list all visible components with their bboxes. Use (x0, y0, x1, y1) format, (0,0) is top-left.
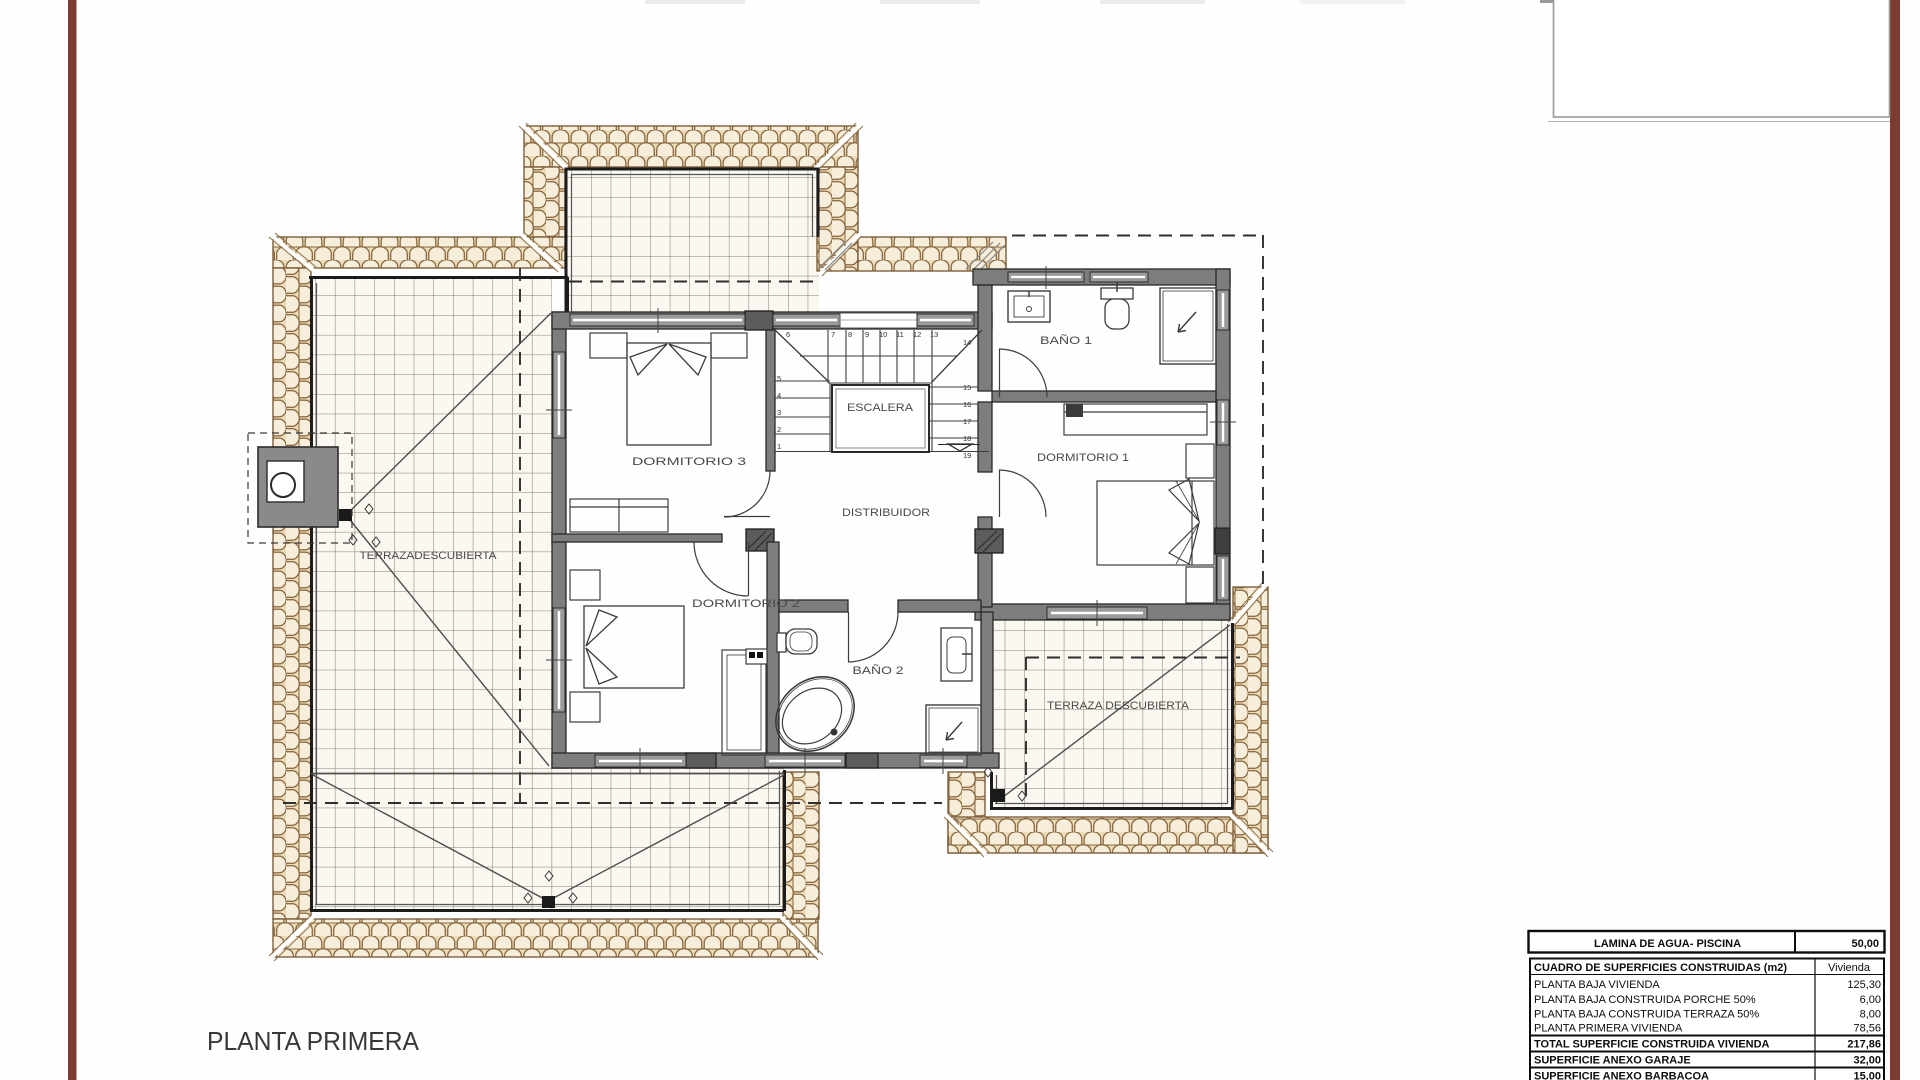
svg-text:14: 14 (963, 338, 971, 347)
svg-text:8: 8 (848, 330, 852, 339)
svg-text:Vivienda: Vivienda (1828, 962, 1871, 974)
svg-text:8,00: 8,00 (1860, 1009, 1881, 1021)
svg-text:1: 1 (777, 442, 781, 451)
svg-text:9: 9 (865, 330, 869, 339)
svg-text:16: 16 (963, 400, 971, 409)
svg-text:2: 2 (777, 425, 781, 434)
svg-text:LAMINA DE AGUA- PISCINA: LAMINA DE AGUA- PISCINA (1594, 938, 1741, 950)
svg-text:DISTRIBUIDOR: DISTRIBUIDOR (842, 507, 930, 519)
svg-text:SUPERFICIE ANEXO GARAJE: SUPERFICIE ANEXO GARAJE (1534, 1055, 1691, 1067)
svg-text:13: 13 (930, 330, 938, 339)
svg-text:PLANTA PRIMERA VIVIENDA: PLANTA PRIMERA VIVIENDA (1534, 1023, 1683, 1035)
svg-text:CUADRO DE SUPERFICIES CONSTRUI: CUADRO DE SUPERFICIES CONSTRUIDAS (m2) (1534, 962, 1787, 974)
svg-text:PLANTA BAJA CONSTRUIDA PORCHE: PLANTA BAJA CONSTRUIDA PORCHE 50% (1534, 994, 1756, 1006)
svg-text:17: 17 (963, 417, 971, 426)
svg-text:SUPERFICIE ANEXO BARBACOA: SUPERFICIE ANEXO BARBACOA (1534, 1071, 1709, 1080)
svg-text:78,56: 78,56 (1853, 1023, 1881, 1035)
svg-text:15,00: 15,00 (1853, 1071, 1881, 1080)
svg-text:19: 19 (963, 451, 971, 460)
svg-text:5: 5 (777, 374, 781, 383)
svg-text:DORMITORIO 3: DORMITORIO 3 (632, 456, 746, 468)
svg-text:PLANTA BAJA VIVIENDA: PLANTA BAJA VIVIENDA (1534, 979, 1660, 991)
svg-text:TOTAL SUPERFICIE CONSTRUIDA VI: TOTAL SUPERFICIE CONSTRUIDA VIVIENDA (1534, 1039, 1770, 1051)
svg-text:BAÑO 1: BAÑO 1 (1040, 334, 1092, 347)
svg-text:DORMITORIO 1: DORMITORIO 1 (1037, 452, 1129, 464)
svg-text:PLANTA BAJA CONSTRUIDA TERRAZA: PLANTA BAJA CONSTRUIDA TERRAZA 50% (1534, 1009, 1759, 1021)
svg-text:7: 7 (831, 330, 835, 339)
svg-text:125,30: 125,30 (1847, 979, 1881, 991)
svg-text:10: 10 (879, 330, 887, 339)
svg-text:3: 3 (777, 408, 781, 417)
svg-text:6,00: 6,00 (1860, 994, 1881, 1006)
svg-text:11: 11 (896, 330, 904, 339)
svg-text:50,00: 50,00 (1851, 938, 1879, 950)
svg-text:4: 4 (777, 391, 781, 400)
svg-text:ESCALERA: ESCALERA (847, 402, 914, 414)
svg-text:6: 6 (786, 330, 790, 339)
svg-text:BAÑO 2: BAÑO 2 (853, 664, 904, 677)
svg-text:32,00: 32,00 (1853, 1055, 1881, 1067)
svg-text:18: 18 (963, 434, 971, 443)
svg-text:TERRAZA DESCUBIERTA: TERRAZA DESCUBIERTA (1047, 700, 1190, 712)
svg-text:DORMITORIO 2: DORMITORIO 2 (692, 598, 800, 610)
svg-text:TERRAZADESCUBIERTA: TERRAZADESCUBIERTA (360, 550, 498, 562)
svg-text:12: 12 (913, 330, 921, 339)
svg-text:15: 15 (963, 383, 971, 392)
svg-text:217,86: 217,86 (1847, 1039, 1881, 1051)
svg-text:PLANTA PRIMERA: PLANTA PRIMERA (207, 1026, 420, 1056)
